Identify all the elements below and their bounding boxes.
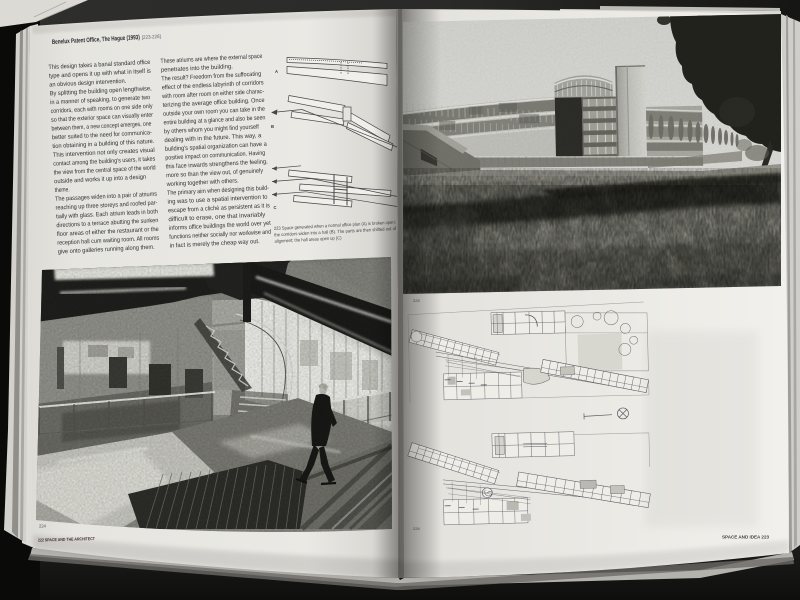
svg-text:C: C <box>274 205 277 210</box>
svg-text:theme.: theme. <box>54 186 70 194</box>
svg-text:A: A <box>275 69 278 74</box>
svg-text:B: B <box>271 124 274 129</box>
svg-text:[223-228]: [223-228] <box>142 34 162 41</box>
svg-text:SPACE AND IDEA 223: SPACE AND IDEA 223 <box>722 535 770 540</box>
svg-text:224: 224 <box>39 523 47 528</box>
